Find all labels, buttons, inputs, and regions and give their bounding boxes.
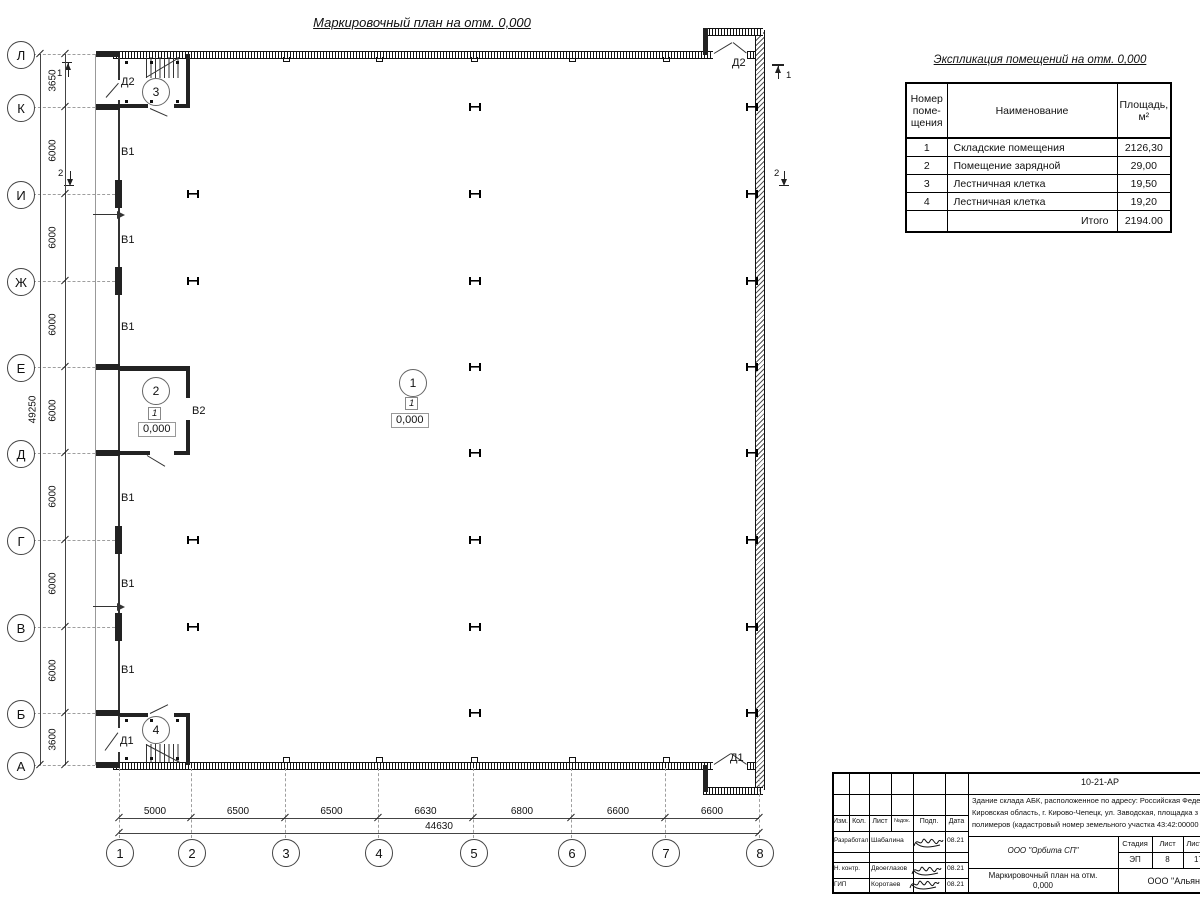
signature-2 — [908, 875, 940, 893]
explication-row-0-area: 2126,30 — [1117, 138, 1171, 157]
explication-row-3-number: 4 — [906, 193, 947, 211]
stair-column-dot-11 — [176, 757, 179, 760]
stamp-stage-header-1: Лист — [1152, 839, 1183, 848]
steel-column-symbol-18 — [746, 623, 758, 631]
top-wall-column-tick-4 — [376, 57, 383, 62]
left-wall-cap-К — [96, 104, 120, 110]
stamp-stage-value-1: 8 — [1152, 855, 1183, 864]
section-mark-1-right-arrow — [775, 66, 781, 73]
left-wall-pilaster-Г — [115, 526, 122, 554]
room2-right-wall-b — [186, 420, 191, 452]
room3-number: 3 — [153, 85, 160, 99]
steel-column-symbol-5 — [469, 536, 481, 544]
stamp-doc-number: 10-21-АР — [1040, 777, 1160, 787]
room2-floor-type: 1 — [148, 407, 161, 420]
left-total-dim-line — [40, 54, 41, 765]
left-dim-line — [65, 54, 66, 765]
stamp-role-0: Разработал — [834, 837, 868, 844]
stamp-stage-header-0: Стадия — [1118, 839, 1152, 848]
left-wall-cap-Е — [96, 364, 120, 370]
grid-line-col-7 — [665, 768, 666, 838]
drawing-sheet: Маркировочный план на отм. 0,000 Эксплик… — [0, 0, 1200, 900]
room2-right-wall-a — [186, 368, 191, 398]
top-wall-column-tick-3 — [283, 57, 290, 62]
steel-column-symbol-7 — [469, 709, 481, 717]
room2-bottom-wall-a — [120, 451, 150, 455]
room2-elevation: 0,000 — [138, 422, 176, 437]
grid-line-col-1 — [119, 768, 120, 838]
steel-column-symbol-8 — [187, 190, 199, 198]
left-wall-pilaster-В — [115, 613, 122, 641]
left-wall-cap-Д — [96, 450, 120, 456]
left-wall-cap-Л — [96, 51, 120, 57]
vestibule-bottom-wall — [703, 787, 763, 795]
stamp-stage-value-0: ЭП — [1118, 855, 1152, 864]
room1-elevation: 0,000 — [391, 413, 429, 428]
stamp-date-2: 08.21 — [947, 881, 964, 888]
grid-line-row-Г — [33, 540, 115, 541]
steel-column-symbol-13 — [746, 190, 758, 198]
bottom-dim-value-4: 6800 — [497, 806, 547, 817]
steel-column-symbol-17 — [746, 536, 758, 544]
stamp-name-2: Коротаев — [871, 881, 900, 888]
door-label-bottom-right: Д1 — [730, 752, 744, 764]
explication-row-3-area: 19,20 — [1117, 193, 1171, 211]
room2-door-leaf — [147, 455, 166, 467]
entrance-arrow-1-head — [117, 211, 125, 219]
stamp-header-cell-0: Изм. — [832, 818, 849, 825]
window-label-v1-3: В1 — [121, 492, 134, 504]
stair-column-dot-8 — [176, 719, 179, 722]
grid-line-col-8 — [759, 768, 760, 838]
bottom-dim-value-1: 6500 — [213, 806, 263, 817]
explication-header-1: Наименование — [947, 83, 1117, 138]
stamp-hline-5 — [832, 878, 968, 879]
stair-column-dot-1 — [150, 61, 153, 64]
steel-column-symbol-16 — [746, 449, 758, 457]
explication-title: Экспликация помещений на отм. 0,000 — [920, 54, 1160, 66]
row-axis-bubble-Г: Г — [7, 527, 35, 555]
door-label-top-right: Д2 — [732, 57, 746, 69]
bottom-dim-value-2: 6500 — [307, 806, 357, 817]
col-axis-bubble-5: 5 — [460, 839, 488, 867]
left-wall-pilaster-Ж — [115, 267, 122, 295]
bottom-wall-column-tick-4 — [376, 757, 383, 762]
explication-row-2-number: 3 — [906, 175, 947, 193]
stamp-hline-8 — [968, 868, 1200, 869]
col-axis-bubble-2: 2 — [178, 839, 206, 867]
bottom-wall-column-tick-6 — [569, 757, 576, 762]
stair4-ext-door-leaf — [105, 732, 119, 750]
stamp-date-1: 08.21 — [947, 865, 964, 872]
steel-column-symbol-15 — [746, 363, 758, 371]
plan-title: Маркировочный план на отм. 0,000 — [292, 15, 552, 30]
left-dim-value-0: 3650 — [48, 56, 59, 106]
room4-number: 4 — [153, 723, 160, 737]
explication-row-3-name: Лестничная клетка — [947, 193, 1117, 211]
stair-column-dot-10 — [150, 757, 153, 760]
stair3-ext-door-leaf — [106, 83, 119, 98]
stamp-sheet-title-line2: 0,000 — [968, 881, 1118, 890]
stamp-role-2: ГИП — [834, 881, 846, 888]
bottom-wall-column-tick-7 — [663, 757, 670, 762]
stamp-hline-6 — [968, 794, 1200, 795]
stamp-hline-2 — [832, 831, 968, 832]
col-axis-bubble-3: 3 — [272, 839, 300, 867]
room2-number-circle: 2 — [142, 377, 170, 405]
stamp-hline-4 — [832, 862, 968, 863]
door-label-bottom-left: Д1 — [120, 735, 134, 747]
right-wall — [755, 30, 765, 790]
stamp-hline-9 — [1118, 852, 1200, 853]
row-axis-bubble-Б: Б — [7, 700, 35, 728]
stamp-hline-0 — [832, 794, 968, 795]
stair4-top-wall-a — [120, 713, 148, 717]
bottom-wall-left-segment — [113, 762, 713, 770]
stair3-int-door-leaf — [150, 108, 168, 117]
explication-row-1-area: 29,00 — [1117, 157, 1171, 175]
col-axis-bubble-7: 7 — [652, 839, 680, 867]
top-wall-column-tick-5 — [471, 57, 478, 62]
left-wall-cap-Б — [96, 710, 120, 716]
window-label-v1-1: В1 — [121, 234, 134, 246]
stamp-description-line1: Здание склада АБК, расположенное по адре… — [972, 796, 1200, 805]
left-wall-pilaster-И — [115, 180, 122, 208]
stamp-description-line2: Кировская область, г. Кирово-Чепецк, ул.… — [972, 808, 1200, 817]
stamp-header-cell-2: Лист — [869, 818, 891, 825]
entrance-arrow-2-head — [117, 603, 125, 611]
door-leaf-top-right-b — [733, 42, 747, 53]
door-label-top-left: Д2 — [121, 76, 135, 88]
stair-column-dot-9 — [125, 757, 128, 760]
entrance-arrow-1-line — [93, 214, 119, 215]
stamp-sheet-title-line1: Маркировочный план на отм. — [968, 871, 1118, 880]
door-leaf-top-right-a — [714, 42, 733, 54]
row-axis-bubble-А: А — [7, 752, 35, 780]
grid-line-col-5 — [473, 768, 474, 838]
explication-row-2-area: 19,50 — [1117, 175, 1171, 193]
stair3-bottom-wall-a — [120, 104, 148, 108]
bottom-dim-value-6: 6600 — [687, 806, 737, 817]
stamp-hline-3 — [832, 852, 968, 853]
bottom-wall-column-tick-5 — [471, 757, 478, 762]
vestibule-top-wall — [703, 28, 763, 36]
stamp-name-1: Двоеглазов — [871, 865, 907, 872]
steel-column-symbol-6 — [469, 623, 481, 631]
grid-line-col-3 — [285, 768, 286, 838]
gate-label-v2: В2 — [192, 405, 205, 417]
vestibule-bottom-left-wall — [703, 765, 708, 792]
stamp-hline-7 — [968, 836, 1200, 837]
section-mark-2-right-label: 2 — [774, 168, 779, 179]
left-dim-value-4: 6000 — [48, 385, 59, 435]
explication-table: Номер поме- щенияНаименованиеПлощадь, м²… — [905, 82, 1172, 233]
grid-line-row-В — [33, 627, 115, 628]
section-mark-2-right-bar — [779, 185, 789, 186]
bottom-dim-value-3: 6630 — [401, 806, 451, 817]
explication-total-label: Итого — [947, 211, 1117, 233]
room1-floor-type: 1 — [405, 397, 418, 410]
steel-column-symbol-1 — [469, 190, 481, 198]
room1-number-circle: 1 — [399, 369, 427, 397]
explication-total-value: 2194.00 — [1117, 211, 1171, 233]
left-dim-value-8: 3600 — [48, 714, 59, 764]
top-wall-column-tick-6 — [569, 57, 576, 62]
stamp-border-top — [832, 772, 1200, 774]
bottom-wall-column-tick-3 — [283, 757, 290, 762]
window-label-v1-2: В1 — [121, 321, 134, 333]
steel-column-symbol-19 — [746, 709, 758, 717]
window-label-v1-4: В1 — [121, 578, 134, 590]
window-label-v1-5: В1 — [121, 664, 134, 676]
bottom-dim-value-5: 6600 — [593, 806, 643, 817]
left-dim-value-2: 6000 — [48, 213, 59, 263]
explication-row-1-number: 2 — [906, 157, 947, 175]
section-mark-2-left-label: 2 — [58, 168, 63, 179]
stair-column-dot-2 — [176, 61, 179, 64]
grid-line-row-Ж — [33, 281, 115, 282]
explication-row-0-number: 1 — [906, 138, 947, 157]
section-mark-1-right-label: 1 — [786, 70, 791, 81]
stair-column-dot-4 — [150, 100, 153, 103]
room2-number: 2 — [153, 384, 160, 398]
left-wall-seg1 — [118, 54, 120, 80]
room2-bottom-wall-b — [174, 451, 190, 455]
stamp-company: ООО "Альянс — [1120, 876, 1200, 886]
left-dim-value-6: 6000 — [48, 559, 59, 609]
top-wall-left-segment — [113, 51, 713, 59]
stair-column-dot-6 — [125, 719, 128, 722]
col-axis-bubble-6: 6 — [558, 839, 586, 867]
stamp-description-line3: полимеров (кадастровый номер земельного … — [972, 820, 1200, 829]
bottom-dim-value-0: 5000 — [130, 806, 180, 817]
left-dim-value-3: 6000 — [48, 299, 59, 349]
stamp-header-cell-4: Подп. — [913, 818, 945, 825]
stair4-int-door-leaf — [150, 704, 168, 714]
row-axis-bubble-И: И — [7, 181, 35, 209]
steel-column-symbol-3 — [469, 363, 481, 371]
entrance-arrow-2-line — [93, 606, 119, 607]
room2-top-wall — [120, 366, 190, 371]
bottom-total-dim-line — [119, 833, 759, 834]
stair3-bottom-wall-b — [174, 104, 190, 108]
steel-column-symbol-2 — [469, 277, 481, 285]
stamp-vline-4 — [945, 772, 946, 892]
row-axis-bubble-Ж: Ж — [7, 268, 35, 296]
vestibule-top-left-wall — [703, 28, 708, 55]
left-total-dim-value: 49250 — [28, 385, 39, 435]
grid-line-col-6 — [571, 768, 572, 838]
left-pilaster-face-line — [95, 54, 96, 765]
stair-column-dot-7 — [150, 719, 153, 722]
room1-number: 1 — [410, 376, 417, 390]
left-dim-value-5: 6000 — [48, 472, 59, 522]
stamp-border-bottom — [832, 892, 1200, 894]
left-wall-cap-А — [96, 762, 120, 768]
stair-column-dot-3 — [125, 100, 128, 103]
explication-row-0-name: Складские помещения — [947, 138, 1117, 157]
explication-header-2: Площадь, м² — [1117, 83, 1171, 138]
stair-column-dot-0 — [125, 61, 128, 64]
bottom-total-dim-value: 44630 — [414, 821, 464, 832]
stamp-border-left — [832, 772, 834, 894]
stamp-date-0: 08.21 — [947, 837, 964, 844]
top-wall-column-tick-7 — [663, 57, 670, 62]
stamp-header-cell-5: Дата — [945, 818, 968, 825]
left-dim-value-7: 6000 — [48, 645, 59, 695]
stamp-header-cell-1: Кол. — [849, 818, 869, 825]
stair4-right-wall — [186, 713, 191, 765]
row-axis-bubble-Е: Е — [7, 354, 35, 382]
steel-column-symbol-12 — [746, 103, 758, 111]
room4-number-circle: 4 — [142, 716, 170, 744]
row-axis-bubble-Д: Д — [7, 440, 35, 468]
stair3-right-wall — [186, 54, 191, 108]
explication-row-2-name: Лестничная клетка — [947, 175, 1117, 193]
steel-column-symbol-11 — [187, 623, 199, 631]
stair4-top-wall-b — [174, 713, 190, 717]
grid-line-col-4 — [378, 768, 379, 838]
steel-column-symbol-4 — [469, 449, 481, 457]
stamp-org: ООО "Орбита СП" — [968, 846, 1118, 855]
door-leaf-bottom-right-a — [714, 753, 731, 765]
steel-column-symbol-10 — [187, 536, 199, 544]
steel-column-symbol-9 — [187, 277, 199, 285]
stamp-hline-1 — [832, 815, 968, 816]
explication-total-empty — [906, 211, 947, 233]
grid-line-row-И — [33, 194, 115, 195]
row-axis-bubble-Л: Л — [7, 41, 35, 69]
stamp-stage-header-2: Листов — [1183, 839, 1200, 848]
steel-column-symbol-14 — [746, 277, 758, 285]
stamp-vline-1 — [869, 772, 870, 892]
col-axis-bubble-8: 8 — [746, 839, 774, 867]
stamp-name-0: Шабалина — [871, 837, 904, 844]
stair-column-dot-5 — [176, 100, 179, 103]
stamp-role-1: Н. контр. — [834, 865, 860, 872]
window-label-v1-0: В1 — [121, 146, 134, 158]
row-axis-bubble-К: К — [7, 94, 35, 122]
signature-0 — [912, 833, 944, 851]
left-dim-value-1: 6000 — [48, 126, 59, 176]
row-axis-bubble-В: В — [7, 614, 35, 642]
steel-column-symbol-0 — [469, 103, 481, 111]
col-axis-bubble-1: 1 — [106, 839, 134, 867]
stamp-vline-5 — [968, 772, 969, 892]
grid-line-col-2 — [191, 768, 192, 838]
stamp-header-cell-3: №док. — [891, 818, 913, 824]
room3-number-circle: 3 — [142, 78, 170, 106]
stamp-stage-value-2: 17 — [1183, 855, 1200, 864]
col-axis-bubble-4: 4 — [365, 839, 393, 867]
explication-row-1-name: Помещение зарядной — [947, 157, 1117, 175]
explication-header-0: Номер поме- щения — [906, 83, 947, 138]
